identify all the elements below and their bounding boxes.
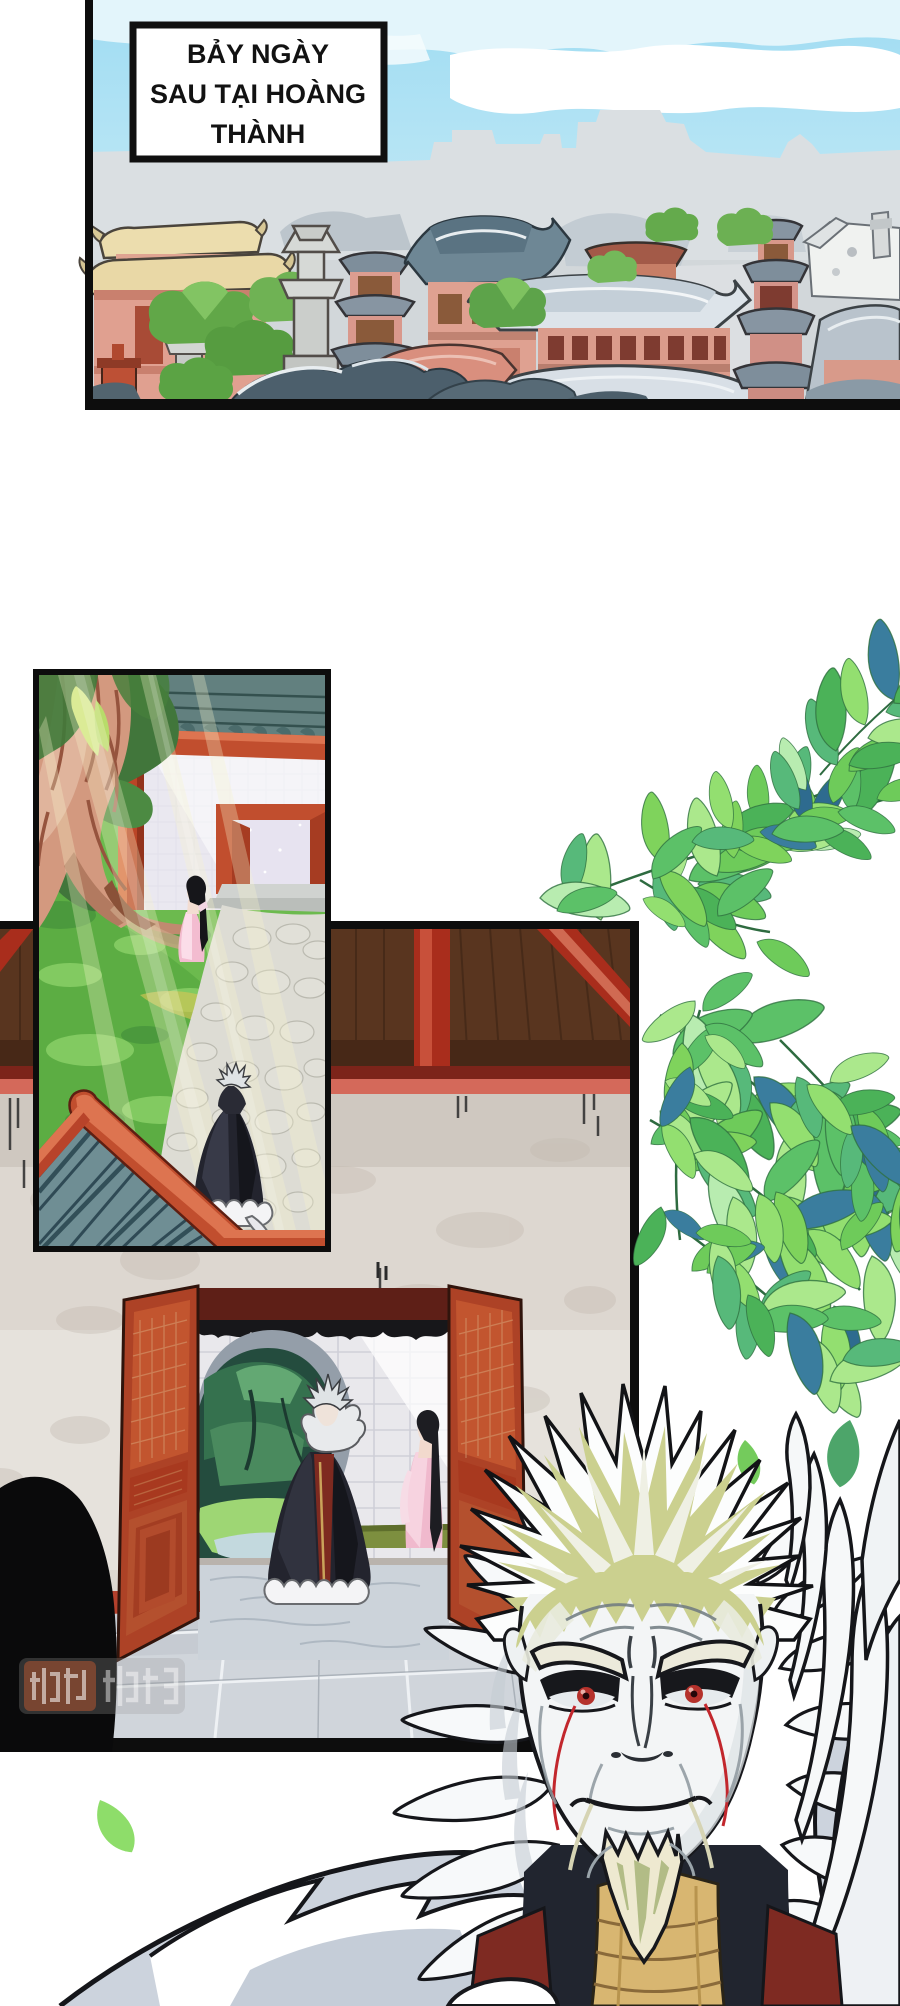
svg-text:THÀNH: THÀNH: [211, 118, 306, 149]
svg-text:BẢY NGÀY: BẢY NGÀY: [187, 37, 329, 69]
svg-text:SAU TẠI HOÀNG: SAU TẠI HOÀNG: [150, 78, 366, 109]
